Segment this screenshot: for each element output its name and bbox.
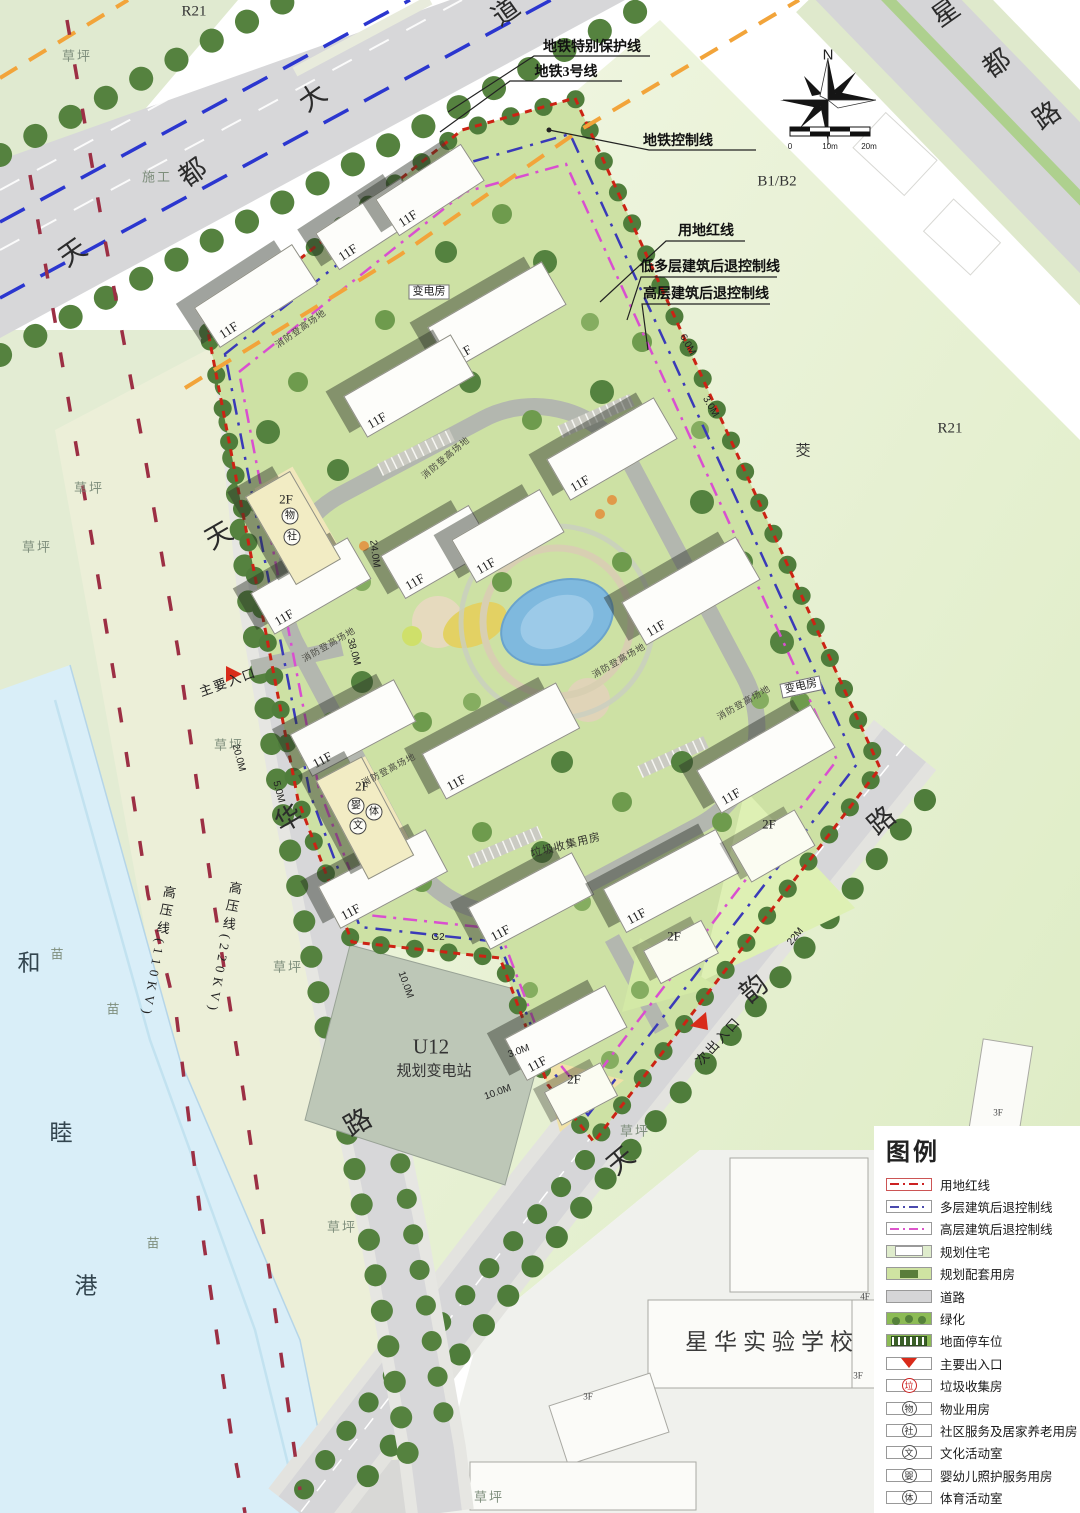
building-11F: 11F bbox=[504, 985, 627, 1081]
legend-label: 地面停车位 bbox=[940, 1331, 1003, 1350]
legend-swatch-circ: 社 bbox=[886, 1424, 932, 1437]
legend-swatch-support bbox=[886, 1267, 932, 1280]
legend-title: 图例 bbox=[886, 1132, 1080, 1167]
legend-label: 社区服务及居家养老用房 bbox=[940, 1421, 1078, 1440]
legend-item: 用地红线 bbox=[886, 1173, 1080, 1195]
legend-item: 多层建筑后退控制线 bbox=[886, 1195, 1080, 1217]
building bbox=[730, 809, 815, 882]
legend-swatch-parking bbox=[886, 1334, 932, 1347]
legend-label: 垃圾收集房 bbox=[940, 1376, 1003, 1395]
legend-item: 规划住宅 bbox=[886, 1240, 1080, 1262]
legend-swatch-res bbox=[886, 1245, 932, 1258]
legend-label: 婴幼儿照护服务用房 bbox=[940, 1466, 1053, 1485]
legend-label: 多层建筑后退控制线 bbox=[940, 1197, 1053, 1216]
building bbox=[316, 756, 414, 879]
building-11F: 11F bbox=[621, 536, 760, 645]
legend-swatch-circ: 婴 bbox=[886, 1469, 932, 1482]
building-11F: 11F bbox=[451, 489, 564, 583]
legend-swatch-circ: 体 bbox=[886, 1491, 932, 1504]
legend-swatch-line-mag bbox=[886, 1222, 932, 1235]
building-11F: 11F bbox=[546, 397, 677, 501]
legend-label: 高层建筑后退控制线 bbox=[940, 1219, 1053, 1238]
legend-item: 社社区服务及居家养老用房 bbox=[886, 1419, 1080, 1441]
building-11F: 11F bbox=[603, 829, 739, 933]
legend-label: 规划配套用房 bbox=[940, 1264, 1015, 1283]
legend-swatch-circ-red: 垃 bbox=[886, 1379, 932, 1392]
legend-label: 物业用房 bbox=[940, 1399, 990, 1418]
legend-item: 婴婴幼儿照护服务用房 bbox=[886, 1464, 1080, 1486]
legend-label: 绿化 bbox=[940, 1309, 965, 1328]
legend-swatch-line-red bbox=[886, 1178, 932, 1191]
legend-label: 主要出入口 bbox=[940, 1354, 1003, 1373]
building-11F: 11F bbox=[422, 682, 581, 799]
site-plan: 11F11F11F11F11F11F11F11F11F11F11F11F11F1… bbox=[0, 0, 1080, 1513]
building-11F: 11F bbox=[194, 244, 318, 348]
building bbox=[544, 1062, 618, 1126]
legend-item: 绿化 bbox=[886, 1307, 1080, 1329]
legend-item: 物物业用房 bbox=[886, 1397, 1080, 1419]
legend-swatch-entry bbox=[886, 1357, 932, 1370]
legend-swatch-road bbox=[886, 1290, 932, 1303]
legend-swatch-circ: 物 bbox=[886, 1402, 932, 1415]
legend-item: 规划配套用房 bbox=[886, 1263, 1080, 1285]
legend-label: 用地红线 bbox=[940, 1175, 990, 1194]
building-11F: 11F bbox=[468, 852, 595, 950]
legend-item: 主要出入口 bbox=[886, 1352, 1080, 1374]
legend-item: 体体育活动室 bbox=[886, 1486, 1080, 1508]
legend-swatch-line-blue bbox=[886, 1200, 932, 1213]
legend-swatch-green bbox=[886, 1312, 932, 1325]
building-11F: 11F bbox=[375, 144, 485, 236]
legend-item: 高层建筑后退控制线 bbox=[886, 1218, 1080, 1240]
legend-label: 文化活动室 bbox=[940, 1443, 1003, 1462]
legend-label: 道路 bbox=[940, 1287, 965, 1306]
legend-item: 地面停车位 bbox=[886, 1330, 1080, 1352]
legend-item: 道路 bbox=[886, 1285, 1080, 1307]
legend-label: 体育活动室 bbox=[940, 1488, 1003, 1507]
legend-item: 文文化活动室 bbox=[886, 1442, 1080, 1464]
legend-swatch-circ: 文 bbox=[886, 1446, 932, 1459]
legend-label: 规划住宅 bbox=[940, 1242, 990, 1261]
building-11F: 11F bbox=[343, 334, 474, 438]
building bbox=[643, 920, 719, 985]
building-11F: 11F bbox=[696, 704, 835, 813]
legend-panel: 图例 用地红线多层建筑后退控制线高层建筑后退控制线规划住宅规划配套用房道路绿化地… bbox=[874, 1126, 1080, 1513]
legend-item: 垃垃圾收集房 bbox=[886, 1375, 1080, 1397]
